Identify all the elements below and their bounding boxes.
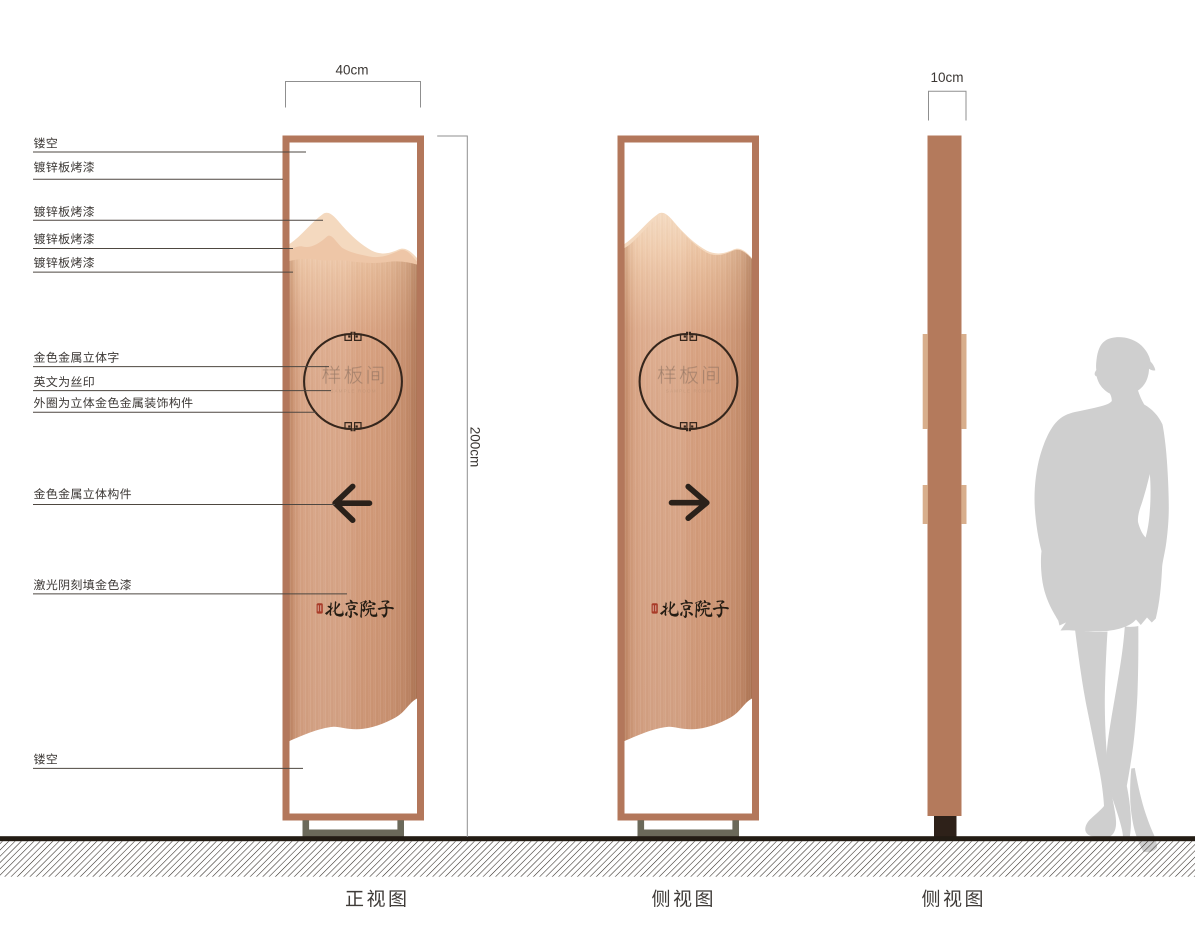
- svg-text:40cm: 40cm: [335, 63, 368, 78]
- svg-text:10cm: 10cm: [930, 70, 963, 85]
- svg-text:SAMPLE ROOM: SAMPLE ROOM: [330, 389, 376, 394]
- svg-text:SAMPLE ROOM: SAMPLE ROOM: [666, 389, 712, 394]
- svg-text:200cm: 200cm: [468, 427, 483, 468]
